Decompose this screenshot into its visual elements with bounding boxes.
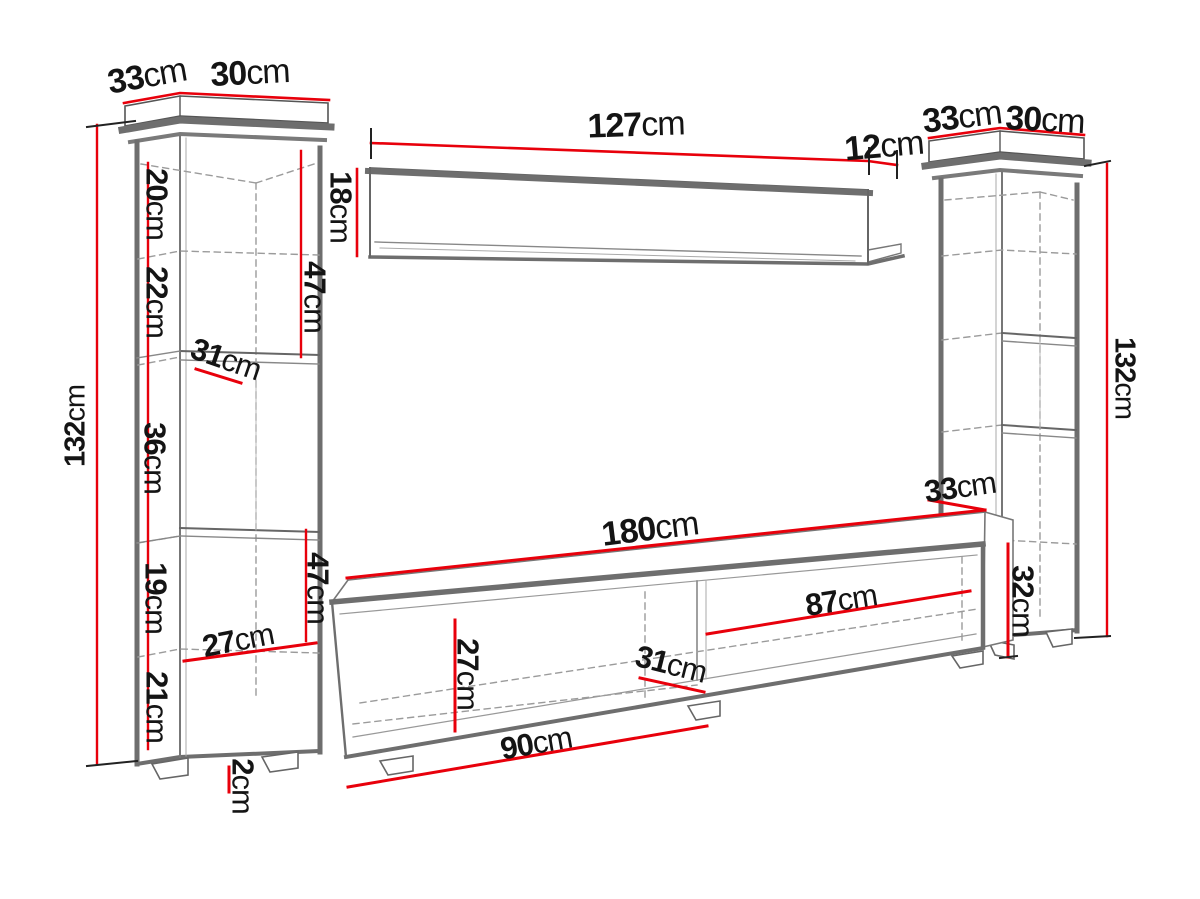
dim-tv-compartment-height: 27cm bbox=[453, 638, 484, 710]
left-cabinet-dimension-lines bbox=[87, 93, 329, 792]
dim-left-section-2: 22cm bbox=[142, 266, 173, 338]
dim-left-cabinet-height: 132cm bbox=[62, 385, 91, 467]
dim-left-lower-front-height: 47cm bbox=[303, 552, 334, 624]
dim-right-cabinet-height: 132cm bbox=[1110, 337, 1139, 419]
dim-left-section-1: 20cm bbox=[142, 168, 173, 240]
dim-left-section-4: 19cm bbox=[141, 562, 172, 634]
wall-shelf-drawing bbox=[368, 168, 903, 264]
dim-shelf-length: 127cm bbox=[587, 106, 685, 143]
dim-left-upper-front-height: 47cm bbox=[300, 261, 331, 333]
furniture-dimension-diagram: 33cm 30cm 132cm 20cm 22cm 31cm 36cm 19cm… bbox=[0, 0, 1200, 899]
tv-stand-drawing bbox=[332, 512, 1013, 775]
dim-right-cabinet-width: 30cm bbox=[1005, 101, 1086, 139]
dim-shelf-end-depth: 12cm bbox=[843, 126, 925, 167]
dim-left-section-3: 36cm bbox=[140, 422, 171, 494]
dim-right-cabinet-depth: 33cm bbox=[921, 95, 1004, 138]
dim-shelf-height: 18cm bbox=[326, 171, 357, 243]
dim-left-foot-height: 2cm bbox=[228, 758, 259, 814]
dim-left-section-5: 21cm bbox=[142, 671, 173, 743]
dim-tv-stand-height: 32cm bbox=[1008, 565, 1039, 637]
dim-left-cabinet-width: 30cm bbox=[210, 54, 291, 92]
